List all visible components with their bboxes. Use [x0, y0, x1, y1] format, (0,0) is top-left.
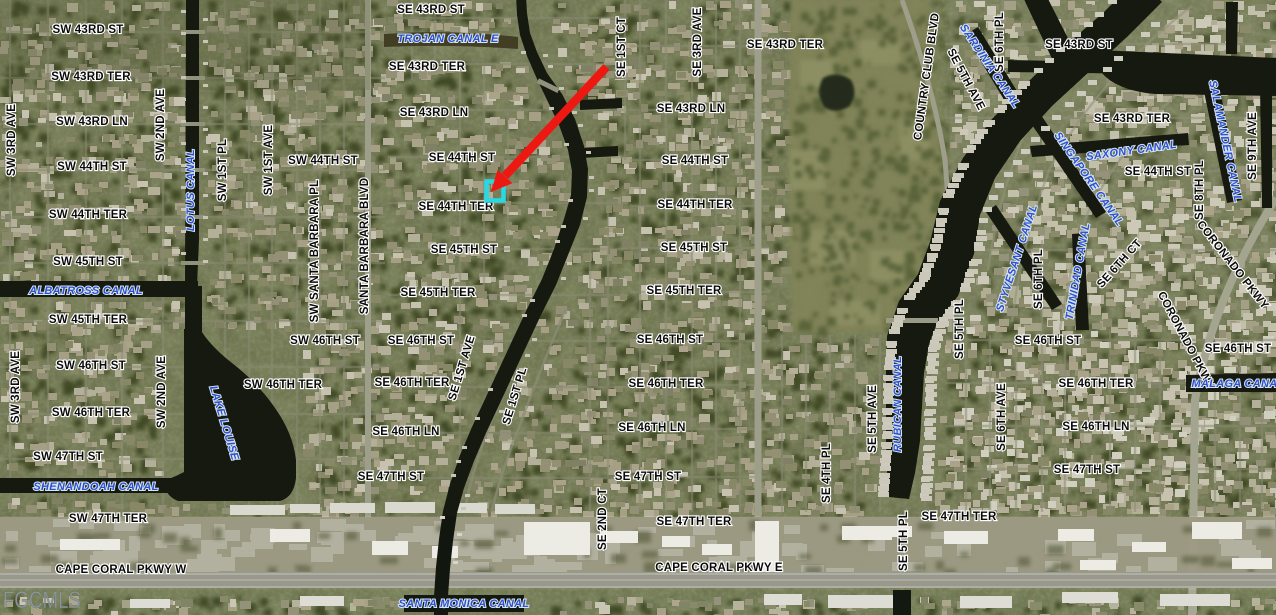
svg-text:SE 44TH ST: SE 44TH ST — [429, 152, 496, 164]
svg-text:SW 3RD AVE: SW 3RD AVE — [10, 351, 22, 423]
svg-text:SW SANTA BARBARA PL: SW SANTA BARBARA PL — [309, 180, 321, 323]
svg-text:SE 45TH ST: SE 45TH ST — [661, 242, 728, 254]
svg-text:SE 47TH TER: SE 47TH TER — [921, 511, 997, 523]
svg-text:SW 45TH TER: SW 45TH TER — [49, 314, 128, 326]
svg-text:SE 4TH PL: SE 4TH PL — [821, 443, 833, 503]
svg-text:SE 46TH ST: SE 46TH ST — [1205, 343, 1272, 355]
svg-text:SE 46TH TER: SE 46TH TER — [374, 377, 450, 389]
svg-text:FGCMLS: FGCMLS — [3, 587, 81, 614]
svg-text:SW 44TH TER: SW 44TH TER — [49, 209, 128, 221]
svg-text:SW 46TH TER: SW 46TH TER — [244, 379, 323, 391]
svg-text:SE 6TH PL: SE 6TH PL — [994, 12, 1006, 72]
svg-text:SE 45TH TER: SE 45TH TER — [646, 285, 722, 297]
svg-text:SE 46TH LN: SE 46TH LN — [618, 422, 685, 434]
svg-text:SE 6TH PL: SE 6TH PL — [1033, 249, 1045, 309]
svg-text:SE 46TH TER: SE 46TH TER — [1058, 378, 1134, 390]
svg-text:SW 1ST PL: SW 1ST PL — [217, 139, 229, 202]
svg-text:SE 45TH TER: SE 45TH TER — [400, 287, 476, 299]
svg-text:SE 43RD TER: SE 43RD TER — [747, 39, 824, 51]
svg-text:SE 9TH AVE: SE 9TH AVE — [1247, 112, 1259, 180]
svg-text:SW 47TH ST: SW 47TH ST — [33, 451, 103, 463]
svg-text:SW 46TH ST: SW 46TH ST — [56, 360, 126, 372]
svg-text:SE 47TH ST: SE 47TH ST — [358, 471, 425, 483]
svg-text:MALAGA CANAL: MALAGA CANAL — [1191, 378, 1276, 390]
svg-text:SW 44TH ST: SW 44TH ST — [288, 155, 358, 167]
svg-text:SE 2ND CT: SE 2ND CT — [597, 488, 609, 550]
svg-text:SW 1ST AVE: SW 1ST AVE — [263, 125, 275, 196]
svg-text:SE 43RD LN: SE 43RD LN — [400, 107, 468, 119]
svg-text:LOTUS CANAL: LOTUS CANAL — [185, 149, 197, 231]
svg-text:SE 44TH TER: SE 44TH TER — [418, 201, 494, 213]
svg-text:SE 43RD ST: SE 43RD ST — [1045, 39, 1113, 51]
svg-text:SE 5TH PL: SE 5TH PL — [954, 299, 966, 359]
svg-text:SE 43RD LN: SE 43RD LN — [657, 103, 725, 115]
svg-text:SW 45TH ST: SW 45TH ST — [53, 256, 123, 268]
svg-text:SE 47TH ST: SE 47TH ST — [1054, 464, 1121, 476]
svg-text:SANTA MONICA CANAL: SANTA MONICA CANAL — [399, 598, 530, 610]
svg-text:SE 5TH AVE: SE 5TH AVE — [867, 385, 879, 453]
svg-text:CAPE CORAL PKWY W: CAPE CORAL PKWY W — [56, 564, 187, 576]
svg-text:SANTA BARBARA BLVD: SANTA BARBARA BLVD — [359, 178, 371, 314]
svg-text:SE 1ST CT: SE 1ST CT — [616, 17, 628, 77]
svg-text:SE 43RD ST: SE 43RD ST — [397, 4, 465, 16]
svg-text:ALBATROSS CANAL: ALBATROSS CANAL — [28, 285, 143, 297]
svg-text:SE 46TH ST: SE 46TH ST — [1015, 335, 1082, 347]
svg-text:RUBICAN CANAL: RUBICAN CANAL — [892, 356, 904, 452]
svg-text:SE 46TH LN: SE 46TH LN — [372, 426, 439, 438]
svg-text:SE 3RD AVE: SE 3RD AVE — [692, 7, 704, 76]
svg-text:SE 43RD TER: SE 43RD TER — [1094, 113, 1171, 125]
svg-text:SW 2ND AVE: SW 2ND AVE — [156, 356, 168, 428]
svg-text:SE 44TH TER: SE 44TH TER — [657, 199, 733, 211]
svg-text:SE 45TH ST: SE 45TH ST — [431, 244, 498, 256]
svg-text:SHENANDOAH CANAL: SHENANDOAH CANAL — [33, 481, 158, 493]
svg-text:SW 2ND AVE: SW 2ND AVE — [155, 89, 167, 161]
svg-text:SE 46TH TER: SE 46TH TER — [628, 378, 704, 390]
svg-text:SW 46TH TER: SW 46TH TER — [52, 407, 131, 419]
svg-text:SE 6TH AVE: SE 6TH AVE — [996, 383, 1008, 451]
svg-text:SW 47TH TER: SW 47TH TER — [69, 513, 148, 525]
svg-text:SW 43RD ST: SW 43RD ST — [52, 24, 123, 36]
svg-text:SE 47TH TER: SE 47TH TER — [656, 516, 732, 528]
svg-text:SE 8TH PL: SE 8TH PL — [1194, 160, 1206, 220]
svg-text:SE 43RD TER: SE 43RD TER — [389, 61, 466, 73]
svg-text:SE 47TH ST: SE 47TH ST — [615, 471, 682, 483]
svg-text:TROJAN CANAL E: TROJAN CANAL E — [397, 33, 499, 45]
svg-text:SE 46TH LN: SE 46TH LN — [1062, 421, 1129, 433]
svg-text:CAPE CORAL PKWY E: CAPE CORAL PKWY E — [655, 562, 783, 574]
svg-text:SW 3RD AVE: SW 3RD AVE — [6, 104, 18, 176]
svg-text:SW 46TH ST: SW 46TH ST — [290, 335, 360, 347]
svg-text:SW 43RD LN: SW 43RD LN — [56, 116, 128, 128]
svg-text:SE 44TH ST: SE 44TH ST — [662, 155, 729, 167]
svg-text:SW 44TH ST: SW 44TH ST — [57, 161, 127, 173]
svg-text:SE 46TH ST: SE 46TH ST — [637, 334, 704, 346]
svg-text:SE 5TH PL: SE 5TH PL — [898, 511, 910, 571]
svg-text:SW 43RD TER: SW 43RD TER — [51, 71, 131, 83]
svg-text:SE 44TH ST: SE 44TH ST — [1125, 166, 1192, 178]
svg-text:SE 46TH ST: SE 46TH ST — [388, 335, 455, 347]
